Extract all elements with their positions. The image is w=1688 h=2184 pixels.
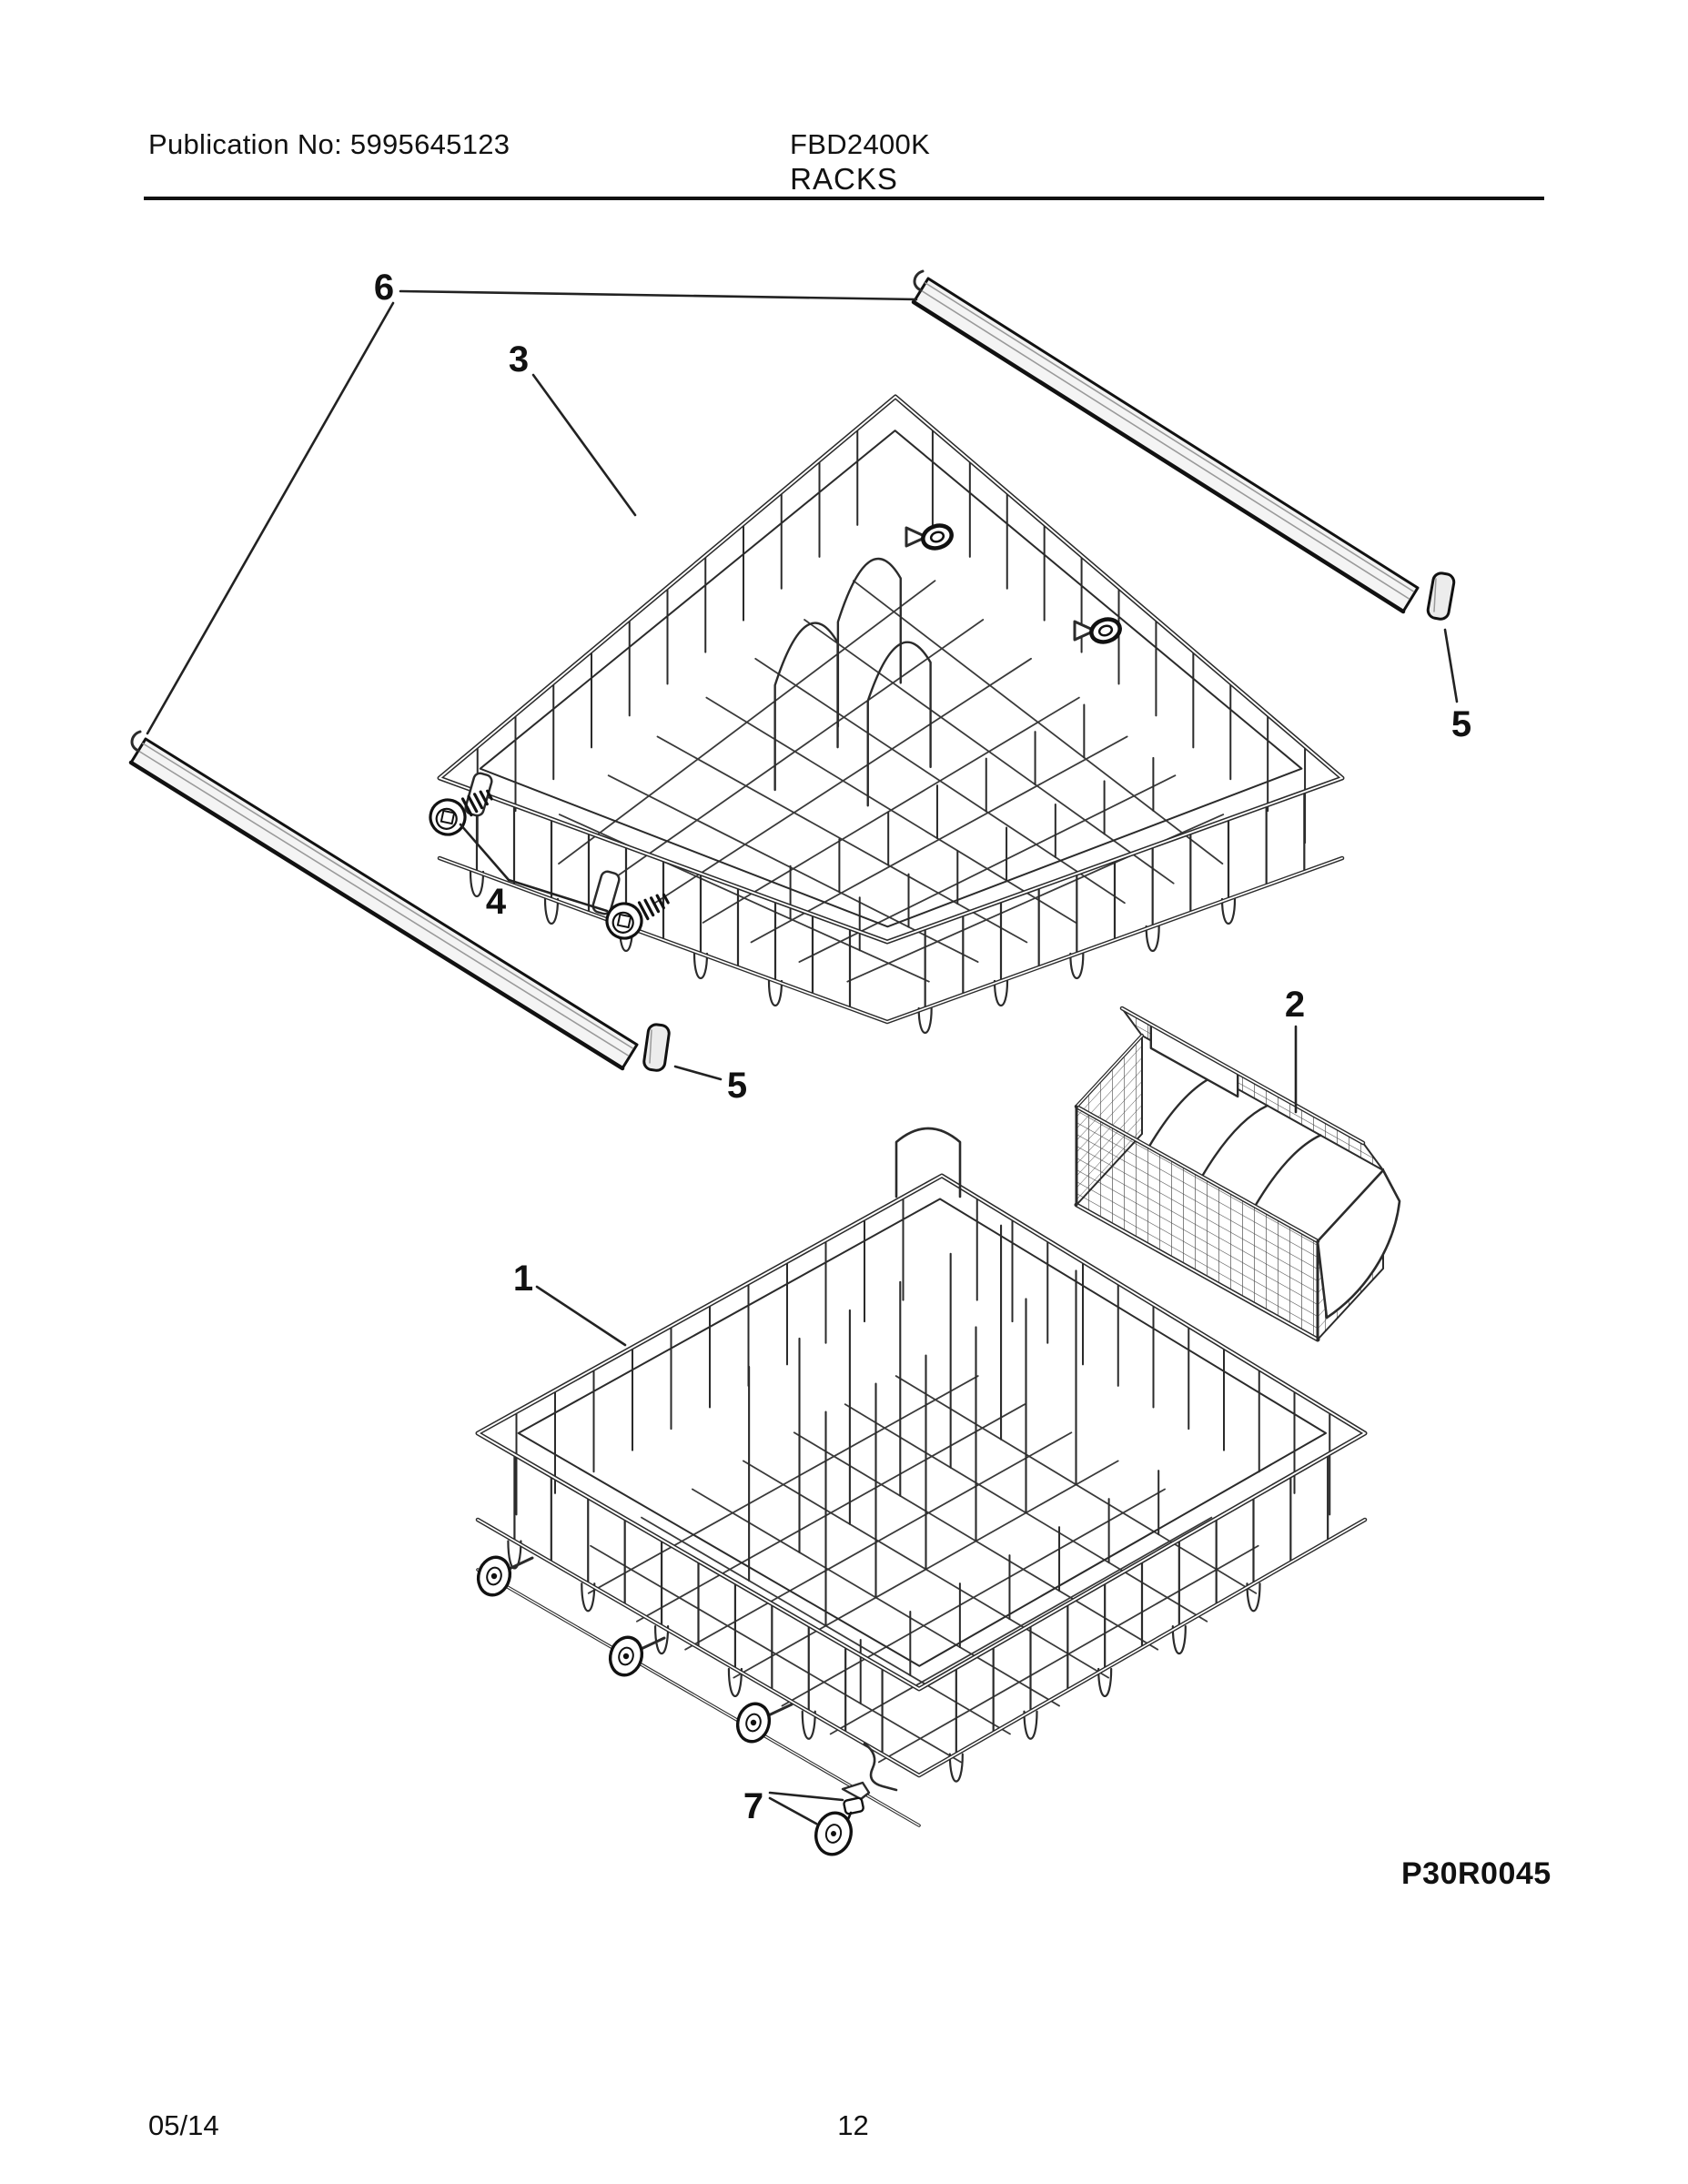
rail-top: [914, 271, 1418, 612]
wheel-1: [474, 1553, 532, 1599]
wheel-3: [733, 1700, 792, 1745]
callout-3-upper-rack: 3: [509, 339, 529, 379]
callout-labels: 6 3 5 4 5 2 1 7: [374, 268, 1471, 1826]
diagram-art: [131, 271, 1457, 1858]
parts-catalog-page: { "header": { "publication_label": "Publ…: [0, 0, 1688, 2184]
upper-rack: [440, 397, 1342, 1033]
callout-7-roller-wheel: 7: [743, 1786, 763, 1826]
callout-2-silverware-basket: 2: [1285, 985, 1305, 1025]
callout-1-lower-rack: 1: [513, 1259, 533, 1299]
callout-5-end-cap-left: 5: [727, 1066, 747, 1106]
end-cap-left: [643, 1024, 671, 1072]
callout-5-end-cap-right: 5: [1451, 704, 1471, 744]
upper-rack-roller-1: [906, 522, 955, 552]
end-cap-right: [1427, 571, 1455, 620]
loose-roller-assembly: [812, 1744, 896, 1858]
rail-left: [131, 732, 637, 1068]
callout-4-screws: 4: [486, 882, 507, 922]
exploded-parts-diagram: 6 3 5 4 5 2 1 7: [0, 0, 1688, 2184]
callout-6-rails: 6: [374, 268, 394, 308]
